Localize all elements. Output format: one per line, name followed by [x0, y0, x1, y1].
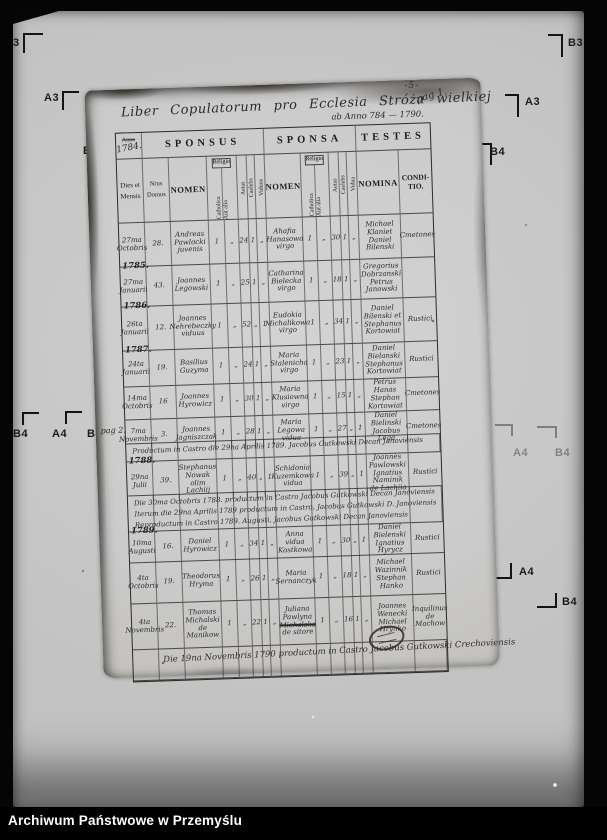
- entry-cell: „: [322, 381, 337, 413]
- entry-cell: „: [230, 384, 245, 416]
- fiducial-bracket: [548, 34, 563, 57]
- entry-cell: „: [225, 220, 240, 263]
- entry-cell: 1: [209, 220, 226, 264]
- fiducial-label-b4-right-faint-2: B4: [555, 447, 570, 459]
- entry-cell: Petrus Hanas Stephan Kortowiat: [364, 378, 407, 411]
- entry-cell: 22.: [157, 603, 184, 649]
- header-nomen-sponsa: NOMEN: [265, 154, 303, 218]
- table-header-columns: Dies et Mensis Nrus Domus NOMEN Religio …: [117, 149, 433, 223]
- entry-cell: „: [229, 348, 244, 383]
- entry-cell: „: [328, 556, 343, 596]
- year-label: 1785.: [122, 262, 149, 272]
- fiducial-label-b3-left: 3: [13, 37, 20, 49]
- entry-cell: 1: [305, 301, 320, 344]
- entry-cell: Rustici: [412, 553, 445, 594]
- document-paper: -5- Liber Copulatorum pro Ecclesia Stróż…: [84, 78, 499, 679]
- entry-cell: Inquilinus de Machow: [413, 594, 446, 640]
- entry-cell: Rustici: [403, 297, 436, 341]
- header-nomina: NOMINA: [357, 150, 401, 214]
- entry-cell: „: [236, 559, 251, 599]
- entry-cell: 1: [210, 264, 227, 304]
- entry-cell: Daniel Bielanski Stephanus Kortowiat: [363, 342, 406, 378]
- entry-cell: 1: [220, 560, 237, 601]
- fiducial-label-b4-right-bold: B4: [562, 596, 577, 608]
- entry-cell: 1: [315, 598, 330, 643]
- entry-cell: 1: [304, 261, 319, 300]
- fiducial-label-a3-right: A3: [525, 96, 540, 108]
- header-catholica: Catholica: [215, 194, 222, 219]
- header-dies-et-mensis: Dies et Mensis: [117, 159, 145, 223]
- entry-cell: 16.: [155, 531, 182, 563]
- entry-cell: „: [317, 217, 332, 260]
- register-table: Anno 1784. SPONSUS SPONSA TESTES Dies et…: [115, 122, 449, 682]
- entry-cell: „: [318, 261, 333, 300]
- year-label: 1789.: [131, 527, 158, 537]
- entry-cell: 19.: [149, 350, 176, 386]
- entry-cell: Andreas Pawlocki juvenis: [171, 221, 210, 265]
- archive-caption: Archiwum Państwowe w Przemyślu: [8, 813, 242, 828]
- entry-cell: Joannes Nehrebeczky viduus: [174, 305, 213, 349]
- entry-cell: Michael Wazinnik Stephan Hanko: [370, 554, 413, 595]
- entry-cell: 1: [313, 526, 328, 558]
- archival-photo-frame: 3 A3 B4 B4 A4 B4 B3 A3 B4 B4 A4 B4 A4 B4…: [0, 0, 607, 840]
- header-sponsa: SPONSA: [264, 126, 357, 154]
- header-conditio: CONDI-TIO.: [399, 149, 433, 213]
- entry-cell: 1: [221, 601, 238, 647]
- entry-cell: 16: [150, 386, 177, 419]
- fiducial-bracket: [537, 426, 557, 438]
- page-number: -5-: [404, 81, 419, 91]
- caption-bar: Archiwum Państwowe w Przemyślu: [0, 807, 607, 840]
- header-aut-alia-sponsa: Aut alia: [316, 195, 323, 216]
- fiducial-label-a3-left: A3: [44, 92, 59, 104]
- entry-cell: Rustici: [411, 522, 444, 554]
- fiducial-bracket: [23, 33, 43, 53]
- religio-group-sponsa: Religio Catholica Aut alia: [301, 153, 331, 217]
- entry-cell: 1: [314, 557, 329, 597]
- date-cell: 1787.24ta Januarii: [123, 351, 150, 387]
- entry-cell: Joannes Legowski: [172, 265, 211, 305]
- entry-cell: Cmetones: [406, 377, 439, 410]
- entry-cell: 1: [303, 217, 318, 260]
- entry-cell: Theodorus Hryma: [182, 560, 221, 601]
- header-nrus-domus: Nrus Domus: [143, 158, 171, 222]
- header-sponsus: SPONSUS: [142, 129, 265, 158]
- entry-cell: Michael Klaniet Daniel Bilenski: [359, 214, 402, 258]
- year-label: 1787.: [125, 346, 152, 356]
- entry-cell: 28.: [145, 222, 172, 266]
- entry-cell: 1: [308, 381, 323, 413]
- entry-cell: „: [226, 264, 241, 303]
- date-cell: 1789.10ma Augusti: [129, 532, 156, 564]
- fiducial-bracket: [65, 411, 82, 424]
- date-cell: 4ta Octobris: [130, 563, 157, 604]
- entry-cell: 1: [219, 529, 236, 561]
- entry-cell: Cmetones: [401, 213, 434, 257]
- entry-cell: 1: [212, 304, 229, 348]
- anno-cell: Anno 1784.: [116, 133, 143, 159]
- entry-cell: „: [237, 600, 252, 645]
- fiducial-bracket: [495, 424, 513, 436]
- entry-cell: 1: [307, 345, 322, 380]
- fiducial-label-b3-right: B3: [568, 37, 583, 49]
- entry-cell: [402, 257, 435, 297]
- entry-cell: Basilius Guzyma: [175, 349, 214, 385]
- entry-cell: „: [228, 304, 243, 347]
- fiducial-bracket: [22, 412, 39, 425]
- document-subtitle: ab Anno 784 — 1790.: [331, 109, 424, 122]
- entry-cell: Eudokia Michalikowa virgo: [269, 302, 306, 346]
- entry-cell: „: [329, 597, 344, 642]
- entry-cell: Daniel Bilenski et Stephanus Kortowiat: [361, 298, 404, 342]
- religio-box: Religio: [211, 158, 231, 169]
- religio-box: Religio: [304, 155, 324, 166]
- fiducial-label-a4-right-faint: A4: [513, 447, 528, 459]
- entry-cell: Rustici: [405, 341, 438, 377]
- fiducial-bracket: [537, 593, 557, 608]
- religio-group-sponsus: Religio Catholica Aut alia: [207, 156, 239, 220]
- anno-year-handwritten: 1784.: [115, 141, 142, 156]
- entry-cell: „: [327, 525, 342, 557]
- fiducial-label-b4-right: B4: [490, 146, 505, 158]
- fiducial-bracket: [505, 94, 519, 117]
- entry-cell: Juliana PawlynaMichalskade sitore: [279, 598, 316, 644]
- entry-cell: 19.: [156, 562, 183, 603]
- fiducial-label-b4-bottom-left: B4: [13, 428, 28, 440]
- date-cell: 4ta Novembris: [131, 604, 158, 650]
- entry-cell: Maria Sernanczyk: [278, 557, 315, 598]
- header-catholica-sponsa: Catholica: [308, 191, 315, 216]
- entry-cell: Catharina Bielecka virgo: [268, 262, 305, 302]
- fiducial-label-a4-right-bold: A4: [519, 566, 534, 578]
- entry-cell: Joannes Hyrowicz: [176, 385, 215, 418]
- film-edge-wedge: [13, 11, 59, 24]
- scan-area: 3 A3 B4 B4 A4 B4 B3 A3 B4 B4 A4 B4 A4 B4…: [13, 11, 584, 807]
- header-aut-alia: Aut alia: [223, 198, 230, 219]
- table-body: 27ma Octobris28.Andreas Pawlocki juvenis…: [119, 213, 448, 681]
- entry-cell: 1: [214, 384, 231, 417]
- entry-cell: Thomas Michalski de Manikow: [183, 601, 222, 647]
- fiducial-bracket: [62, 91, 79, 110]
- entry-cell: „: [319, 301, 334, 344]
- year-label: 1788.: [129, 457, 156, 467]
- entry-cell: Anna vidua Kostkowa: [277, 526, 314, 558]
- entry-cell: Ahafia Hanasowa virgo: [267, 218, 304, 262]
- entry-cell: Gregorius Dobrzanski Petrus Janowski: [360, 258, 403, 298]
- year-label: 1786.: [123, 302, 150, 312]
- entry-cell: Daniel Hyrowicz: [181, 530, 220, 563]
- entry-cell: „: [321, 345, 336, 380]
- fiducial-label-a4-bottom-left: A4: [52, 428, 67, 440]
- entry-cell: Maria Stalenicha virgo: [271, 345, 308, 381]
- entry-cell: „: [235, 529, 250, 561]
- header-testes: TESTES: [356, 123, 431, 150]
- header-nomen-sponsus: NOMEN: [169, 157, 209, 221]
- entry-cell: Daniel Bielenski Ignatius Hyrycz: [369, 523, 412, 556]
- date-cell: 14ma Octobris: [124, 387, 151, 420]
- entry-cell: 1: [213, 348, 230, 384]
- entry-cell: Maria Klusiowna virgo: [272, 381, 309, 414]
